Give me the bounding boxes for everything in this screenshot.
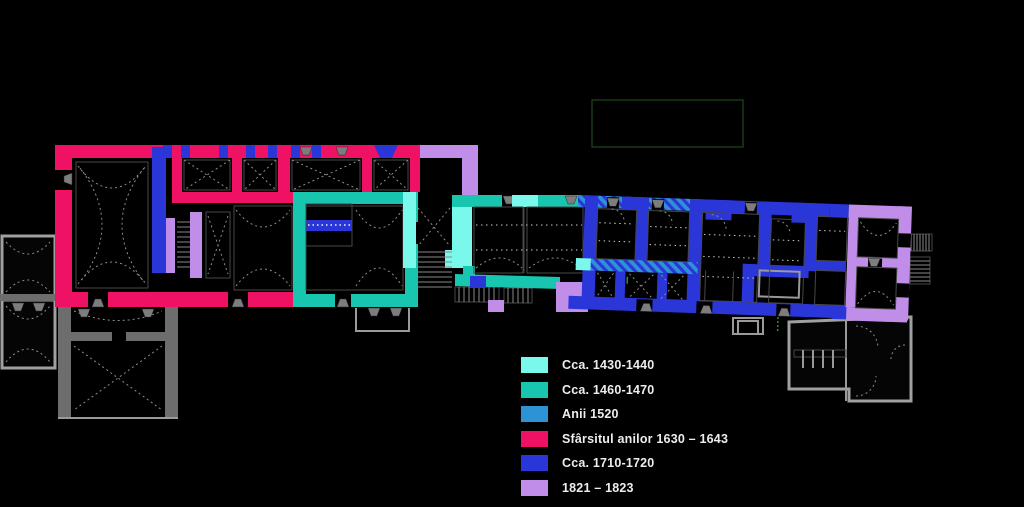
walls-middle-teal (452, 195, 588, 312)
legend: Cca. 1430-1440Cca. 1460-1470Anii 1520Sfâ… (521, 357, 728, 496)
annex-bottom-middle (356, 308, 409, 331)
legend-item-1821-1823: 1821 – 1823 (521, 480, 728, 496)
legend-swatch-sfarsitul-1630-1643 (521, 431, 548, 447)
legend-item-cca-1430-1440: Cca. 1430-1440 (521, 357, 728, 373)
legend-item-sfarsitul-1630-1643: Sfârsitul anilor 1630 – 1643 (521, 431, 728, 447)
annotation-green-rect (592, 100, 743, 147)
legend-swatch-1821-1823 (521, 480, 548, 496)
legend-label-cca-1710-1720: Cca. 1710-1720 (562, 456, 654, 470)
legend-swatch-cca-1430-1440 (521, 357, 548, 373)
legend-swatch-cca-1710-1720 (521, 455, 548, 471)
legend-label-anii-1520: Anii 1520 (562, 407, 619, 421)
porch-bottom-right (733, 318, 763, 334)
stairs-right-edge (908, 234, 932, 284)
legend-label-1821-1823: 1821 – 1823 (562, 481, 634, 495)
annex-far-left (0, 236, 57, 368)
room-teal-1460 (293, 192, 418, 307)
annex-bottom-left (58, 307, 178, 419)
legend-item-cca-1710-1720: Cca. 1710-1720 (521, 455, 728, 471)
legend-item-cca-1460-1470: Cca. 1460-1470 (521, 382, 728, 398)
legend-label-cca-1460-1470: Cca. 1460-1470 (562, 383, 654, 397)
legend-swatch-cca-1460-1470 (521, 382, 548, 398)
wing-right (568, 195, 912, 338)
legend-swatch-anii-1520 (521, 406, 548, 422)
floor-plan-stage: Cca. 1430-1440Cca. 1460-1470Anii 1520Sfâ… (0, 0, 1024, 507)
legend-label-sfarsitul-1630-1643: Sfârsitul anilor 1630 – 1643 (562, 432, 728, 446)
legend-label-cca-1430-1440: Cca. 1430-1440 (562, 358, 654, 372)
legend-item-anii-1520: Anii 1520 (521, 406, 728, 422)
floor-plan-drawing (0, 0, 1024, 507)
annex-bottom-right (789, 317, 911, 401)
